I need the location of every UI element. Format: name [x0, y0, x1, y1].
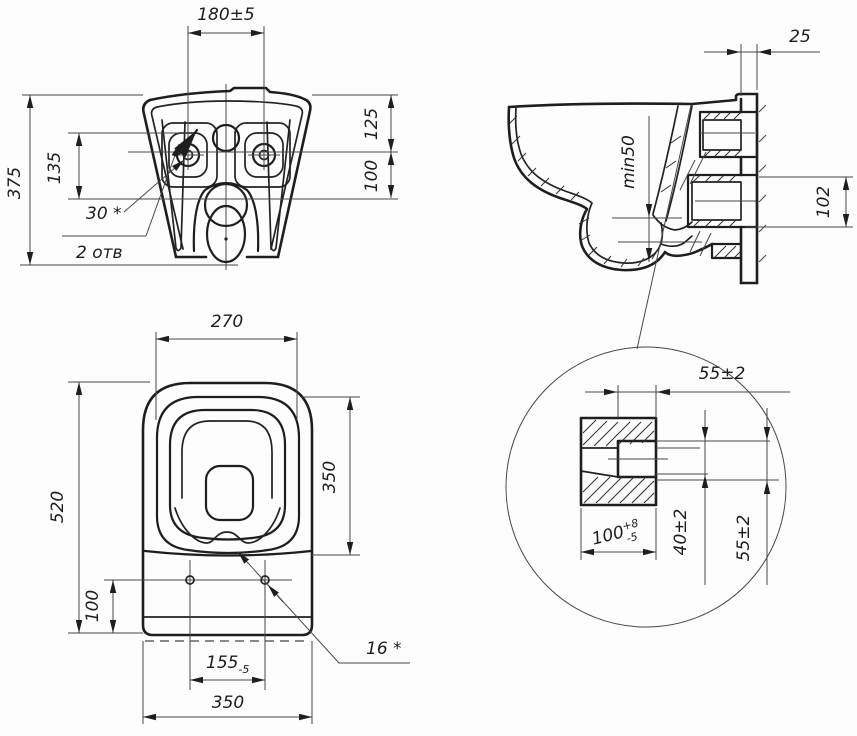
side-top-edge — [509, 94, 757, 107]
detail-leader — [637, 105, 691, 349]
dim-350-right-label: 350 — [320, 461, 340, 493]
detail-circle — [506, 347, 786, 627]
side-wall-hatch — [509, 116, 681, 267]
plan-water-line — [182, 421, 272, 498]
dim-100-plan-label: 100 — [83, 590, 103, 622]
dim-102-label: 102 — [814, 186, 834, 218]
plan-dam-wave — [175, 508, 280, 543]
dim-155-label: 155-5 — [206, 653, 249, 676]
dim-350-bottom-label: 350 — [212, 693, 244, 713]
dim-125-label: 125 — [362, 108, 382, 140]
detail-hatch-bottom — [583, 477, 654, 503]
drawing-canvas: 180±5 375 135 125 100 30 * 2 отв — [0, 0, 857, 736]
side-outer-bowl — [509, 107, 712, 270]
note-16-label: 16 * — [366, 639, 402, 659]
side-trap-upper — [653, 215, 692, 230]
plan-sump-hole — [206, 466, 253, 520]
dim-520-label: 520 — [48, 491, 68, 523]
side-funnel-wall-a — [653, 106, 678, 214]
side-wall-ticks — [759, 105, 766, 262]
note-30-label: 30 * — [86, 204, 122, 224]
rear-view: 180±5 375 135 125 100 30 * 2 отв — [5, 5, 398, 270]
note-2otv-label: 2 отв — [76, 243, 123, 263]
dim-min50-label: min50 — [619, 135, 639, 189]
detail-view: 55±2 100+8-5 40±2 55±2 — [506, 347, 790, 627]
dim-25-label: 25 — [789, 27, 811, 47]
side-inlet-channel — [703, 120, 741, 150]
detail-channel-slant — [581, 471, 618, 477]
dim-270-label: 270 — [211, 312, 243, 332]
technical-drawing-sheet: 180±5 375 135 125 100 30 * 2 отв — [0, 0, 857, 736]
side-web-hatch — [680, 152, 711, 256]
rear-left-channel — [162, 120, 185, 251]
dim-55-right-label: 55±2 — [734, 515, 754, 562]
rear-egg-center-dot — [224, 237, 227, 240]
side-section-view: min50 25 102 — [509, 27, 853, 349]
dim-180-label: 180±5 — [197, 5, 255, 25]
leader-30 — [124, 160, 184, 212]
dim-375-label: 375 — [5, 167, 25, 199]
plan-view: 270 520 350 100 155-5 350 16 * — [48, 312, 410, 724]
dim-40-label: 40±2 — [671, 509, 691, 556]
dim-135-label: 135 — [45, 152, 65, 184]
dim-100-rear-label: 100 — [362, 160, 382, 192]
side-trap-lower — [661, 236, 692, 246]
dim-55-top-label: 55±2 — [699, 364, 746, 384]
dim-100-detail-label: 100+8-5 — [589, 516, 643, 553]
side-foot-hatch — [714, 246, 741, 258]
side-inner-bowl — [516, 108, 663, 263]
